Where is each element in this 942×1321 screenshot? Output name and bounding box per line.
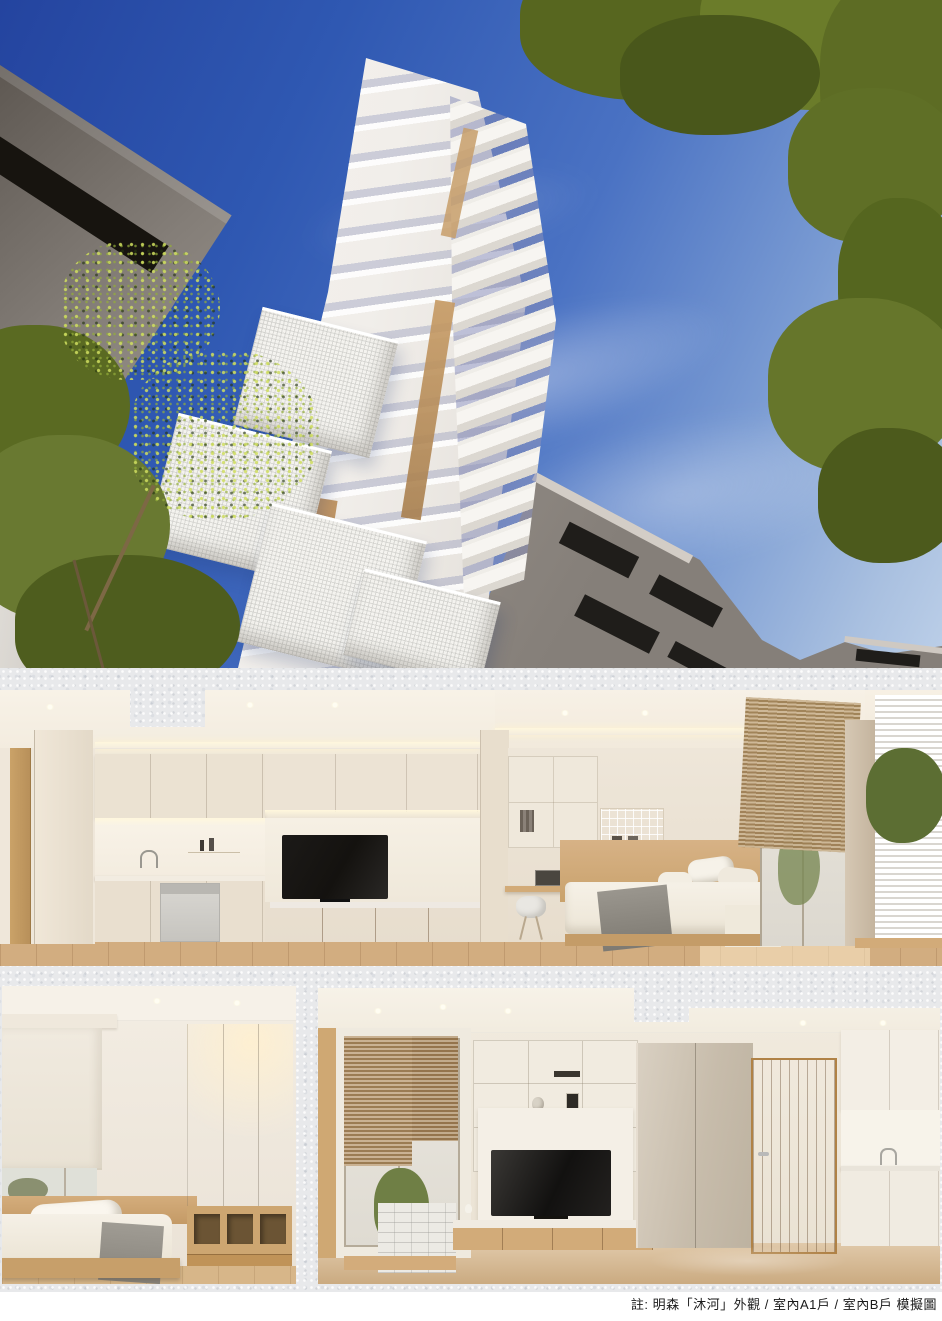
wood-slat-door — [751, 1058, 837, 1254]
flyer-page: 註: 明森「沐河」外觀 / 室內A1戶 / 室內B戶 模擬圖 — [0, 0, 942, 1321]
photo-interior-b-living — [318, 988, 940, 1284]
ceiling-spotlight — [798, 1020, 808, 1026]
bed-base-wood — [2, 1258, 180, 1278]
ceiling-spotlight — [45, 704, 55, 710]
kitchen-faucet — [140, 850, 158, 868]
wardrobe-seam — [258, 1024, 259, 1206]
dishwasher-controls — [161, 884, 219, 894]
wall-column — [845, 720, 875, 946]
ceiling-spotlight — [438, 1004, 448, 1010]
balcony-deck — [855, 938, 942, 948]
wardrobe — [187, 1024, 293, 1206]
kitchen-faucet — [880, 1148, 897, 1165]
bamboo-blind — [344, 1036, 412, 1166]
tall-cabinet — [34, 730, 93, 944]
ceiling-spotlight — [373, 1008, 383, 1014]
shelf-books — [554, 1071, 580, 1077]
kitchen-upper-cabinets — [95, 754, 265, 818]
tv-wall-upper-panels — [265, 754, 480, 812]
caption: 註: 明森「沐河」外觀 / 室內A1戶 / 室內B戶 模擬圖 — [631, 1294, 937, 1313]
shelf-line — [474, 1083, 637, 1084]
cubby-hole — [227, 1214, 253, 1244]
bamboo-blind — [412, 1036, 458, 1141]
ceiling-spotlight — [330, 702, 340, 708]
cubby-hole — [260, 1214, 286, 1244]
shelf-books — [520, 810, 534, 832]
cabinet-seam — [695, 1043, 696, 1248]
kitchen-upper-cabinets — [841, 1030, 940, 1110]
tv-wall-cove-light — [265, 810, 480, 818]
bird-figurine — [465, 1204, 472, 1213]
tall-cabinets — [636, 1043, 753, 1248]
kitchen-shelf — [188, 852, 240, 853]
ceiling-cove-light — [95, 742, 480, 749]
tv-screen — [491, 1150, 611, 1216]
console-drawers — [453, 1228, 653, 1250]
ceiling-spotlight — [245, 702, 255, 708]
tv-stand — [534, 1216, 568, 1219]
photo-exterior — [0, 0, 942, 668]
ceiling-spotlight — [503, 1008, 513, 1014]
door-frame-strip — [318, 1028, 337, 1258]
ceiling-spotlight — [560, 710, 570, 716]
cubby-hole — [194, 1214, 220, 1244]
door-handle — [758, 1152, 769, 1156]
ceiling-spotlight — [640, 710, 650, 716]
photo-interior-a1 — [0, 690, 942, 966]
floor-sheen — [648, 1246, 848, 1276]
wall-pillar — [480, 730, 509, 942]
balcony-deck — [344, 1256, 456, 1270]
console-top — [453, 1220, 653, 1228]
ceiling-spotlight — [878, 1020, 888, 1026]
kitchen-bottle — [200, 840, 204, 851]
tv-console-drawers — [270, 908, 480, 942]
wood-door — [10, 748, 31, 944]
photo-interior-b-bedroom — [2, 986, 296, 1284]
tree-right — [818, 428, 942, 563]
wardrobe-seam — [223, 1024, 224, 1206]
window-soffit — [2, 1014, 117, 1028]
tv-screen — [282, 835, 388, 899]
cubby-unit — [187, 1206, 292, 1254]
balcony-tree — [866, 748, 942, 843]
desk-chair — [516, 896, 546, 918]
ceiling-spotlight — [232, 1000, 242, 1006]
bamboo-blind — [738, 697, 861, 853]
ceiling-spotlight — [152, 998, 162, 1004]
roller-blind — [2, 1028, 102, 1170]
bed-base-wood — [565, 934, 790, 946]
kitchen-bottle — [209, 838, 214, 851]
laptop — [535, 870, 561, 886]
kitchen-backsplash — [95, 818, 265, 878]
desk-upper-cabinet — [508, 756, 598, 848]
kitchen-lower-cabinets — [841, 1171, 940, 1246]
balcony-window — [336, 1028, 471, 1258]
dishwasher — [160, 883, 220, 942]
